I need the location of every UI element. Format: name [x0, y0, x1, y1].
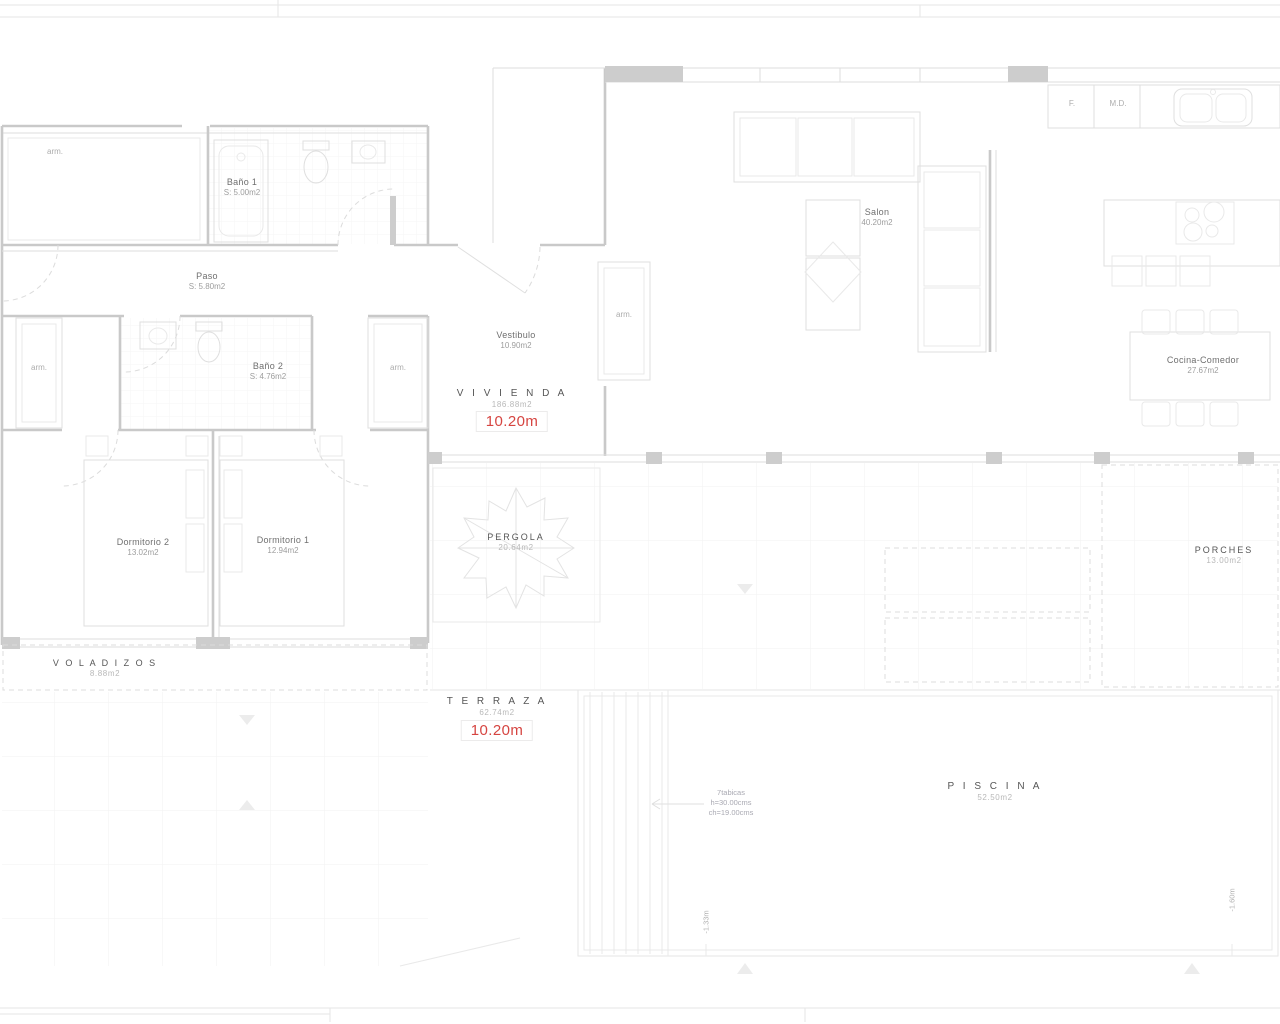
- room-label-paso: Paso S: 5.80m2: [189, 271, 225, 291]
- kitchen-label-fridge: F.: [1069, 99, 1075, 108]
- kitchen-dining: [1048, 85, 1280, 426]
- zone-label-terraza: T E R R A Z A 62.74m2: [447, 696, 548, 717]
- zone-label-vivienda: V I V I E N D A 186.88m2: [457, 388, 568, 409]
- zone-label-porches: PORCHES 13.00m2: [1195, 545, 1254, 565]
- room-label-bano2: Baño 2 S: 4.76m2: [250, 361, 286, 381]
- dimension-label-vivienda: 10.20m: [476, 411, 548, 432]
- room-label-dormitorio1: Dormitorio 1 12.94m2: [257, 535, 310, 555]
- floor-grids: [2, 128, 1278, 966]
- room-label-vestibulo: Vestibulo 10.90m2: [496, 330, 535, 350]
- closet-label-left: arm.: [31, 363, 47, 372]
- room-label-cocina: Cocina-Comedor 27.67m2: [1167, 355, 1239, 375]
- salon-furniture: [734, 112, 986, 352]
- room-label-dormitorio2: Dormitorio 2 13.02m2: [117, 537, 170, 557]
- closet-label-right: arm.: [390, 363, 406, 372]
- closet-label-vestibule: arm.: [616, 310, 632, 319]
- zone-label-pergola: PERGOLA 20.64m2: [487, 532, 545, 552]
- zone-label-piscina: P I S C I N A 52.50m2: [948, 781, 1043, 802]
- closet-label-top: arm.: [47, 147, 63, 156]
- pool: [578, 690, 1278, 974]
- zone-label-voladizos: V O L A D I Z O S 8.88m2: [53, 658, 157, 678]
- kitchen-label-md: M.D.: [1110, 99, 1127, 108]
- dimension-label-terraza: 10.20m: [461, 720, 533, 741]
- pool-depth-left: -1.33m: [702, 910, 711, 933]
- room-label-salon: Salon 40.20m2: [861, 207, 892, 227]
- floor-plan: arm. arm. arm. arm. Baño 1 S: 5.00m2 Pas…: [0, 0, 1280, 1024]
- pool-depth-right: -1.60m: [1228, 888, 1237, 911]
- room-label-bano1: Baño 1 S: 5.00m2: [224, 177, 260, 197]
- plan-linework: [0, 0, 1280, 1024]
- stairs-note: 7tabicas h=30.00cms ch=19.00cms: [709, 788, 754, 818]
